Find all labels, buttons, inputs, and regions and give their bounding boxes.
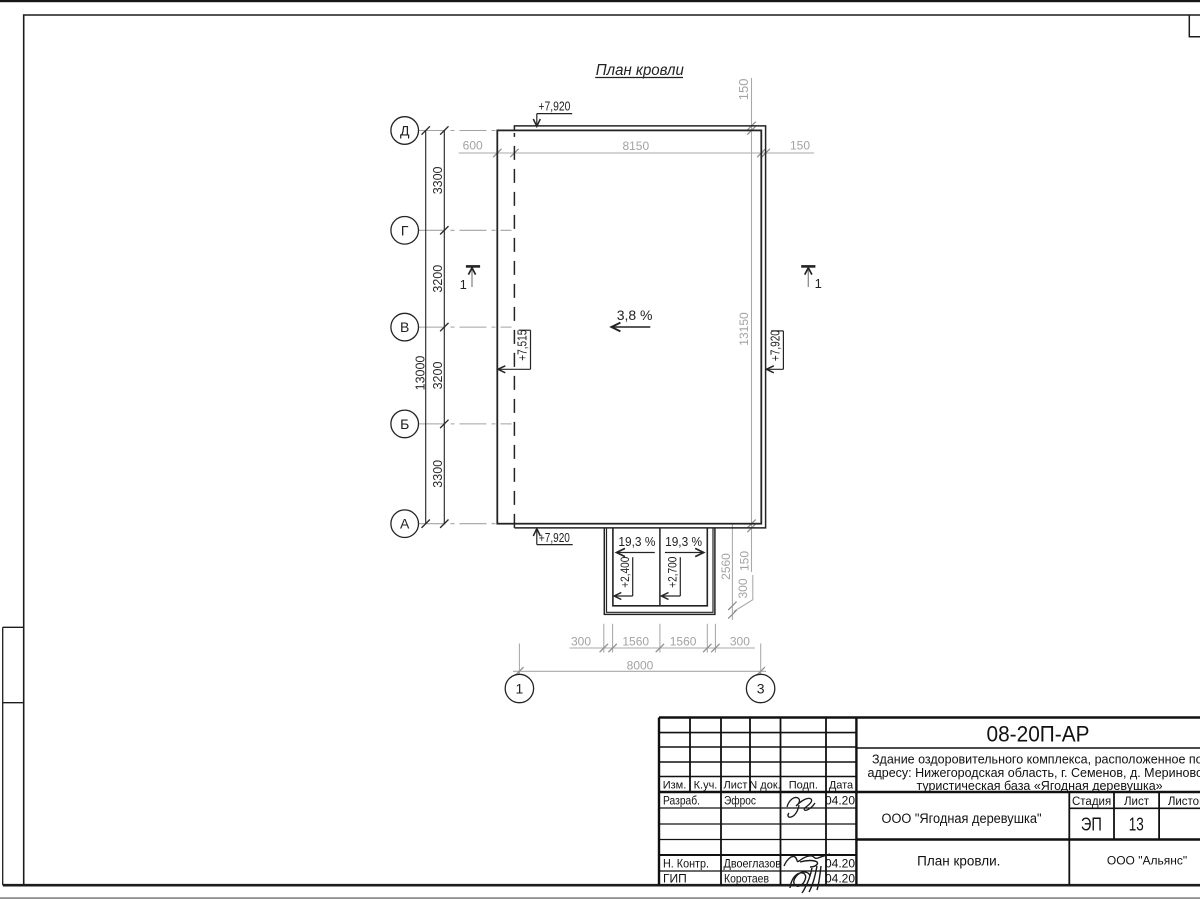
- svg-text:N док.: N док.: [749, 780, 780, 792]
- svg-text:04.20: 04.20: [825, 871, 855, 885]
- svg-text:3,8 %: 3,8 %: [617, 307, 653, 323]
- svg-text:3300: 3300: [431, 460, 445, 488]
- svg-text:300: 300: [736, 578, 750, 598]
- svg-text:Разраб.: Разраб.: [663, 793, 700, 807]
- svg-text:300: 300: [730, 634, 750, 648]
- svg-text:04.20: 04.20: [825, 793, 855, 807]
- svg-text:+7,515: +7,515: [516, 330, 530, 361]
- svg-text:ООО "Ягодная деревушка": ООО "Ягодная деревушка": [882, 811, 1042, 826]
- svg-text:Б: Б: [400, 416, 409, 432]
- svg-text:08-20П-АР: 08-20П-АР: [987, 722, 1090, 747]
- svg-text:План кровли.: План кровли.: [917, 854, 1000, 869]
- svg-text:В: В: [400, 319, 409, 335]
- svg-text:13: 13: [1129, 815, 1144, 835]
- svg-text:Подп.: Подп.: [789, 780, 818, 792]
- svg-text:1: 1: [516, 681, 524, 697]
- svg-text:Лист: Лист: [1124, 796, 1150, 808]
- svg-text:А: А: [400, 516, 410, 532]
- svg-text:туристическая база «Ягодная де: туристическая база «Ягодная деревушка»: [917, 779, 1163, 793]
- svg-text:04.20: 04.20: [825, 857, 855, 871]
- svg-text:150: 150: [736, 79, 751, 101]
- svg-text:8150: 8150: [622, 139, 649, 153]
- svg-text:8000: 8000: [627, 658, 654, 672]
- svg-text:Д: Д: [400, 123, 410, 139]
- svg-text:1: 1: [460, 277, 467, 292]
- svg-text:150: 150: [737, 551, 751, 571]
- svg-text:600: 600: [463, 139, 483, 153]
- svg-text:2560: 2560: [719, 553, 733, 580]
- svg-text:Г: Г: [401, 222, 409, 238]
- svg-text:+2,400: +2,400: [618, 556, 632, 587]
- svg-text:1560: 1560: [670, 634, 697, 648]
- svg-text:К.уч.: К.уч.: [694, 780, 718, 792]
- svg-text:Двоеглазов: Двоеглазов: [724, 857, 782, 871]
- svg-text:Эфрос: Эфрос: [724, 793, 756, 807]
- svg-text:Здание оздоровительного компле: Здание оздоровительного комплекса, распо…: [872, 753, 1200, 767]
- svg-text:3200: 3200: [431, 265, 445, 293]
- svg-text:+7,920: +7,920: [769, 330, 783, 361]
- svg-text:+7,920: +7,920: [538, 100, 570, 114]
- svg-text:ЭП: ЭП: [1081, 815, 1102, 835]
- svg-text:1560: 1560: [622, 634, 649, 648]
- svg-text:Листов: Листов: [1168, 796, 1200, 808]
- svg-text:3: 3: [757, 681, 765, 697]
- svg-text:ООО "Альянс": ООО "Альянс": [1107, 853, 1187, 867]
- svg-text:300: 300: [571, 634, 591, 648]
- svg-text:ГИП: ГИП: [663, 871, 687, 885]
- svg-text:Н. Контр.: Н. Контр.: [663, 857, 709, 871]
- svg-text:19,3 %: 19,3 %: [665, 535, 702, 549]
- svg-text:19,3 %: 19,3 %: [618, 535, 655, 549]
- svg-text:+7,920: +7,920: [539, 531, 570, 545]
- svg-text:Изм.: Изм.: [663, 780, 687, 792]
- svg-text:13150: 13150: [737, 312, 751, 346]
- svg-text:3300: 3300: [431, 166, 445, 194]
- svg-text:Дата: Дата: [829, 780, 854, 792]
- svg-text:3200: 3200: [431, 362, 445, 390]
- svg-text:адресу: Нижегородская область,: адресу: Нижегородская область, г. Семено…: [868, 766, 1200, 780]
- svg-text:План кровли: План кровли: [596, 62, 684, 79]
- svg-text:13000: 13000: [413, 356, 427, 391]
- svg-text:+2,700: +2,700: [665, 556, 679, 587]
- svg-text:Лист: Лист: [724, 780, 748, 792]
- svg-text:1: 1: [815, 276, 822, 291]
- svg-text:Коротаев: Коротаев: [724, 871, 769, 885]
- svg-text:Стадия: Стадия: [1072, 796, 1111, 808]
- svg-text:150: 150: [790, 139, 810, 153]
